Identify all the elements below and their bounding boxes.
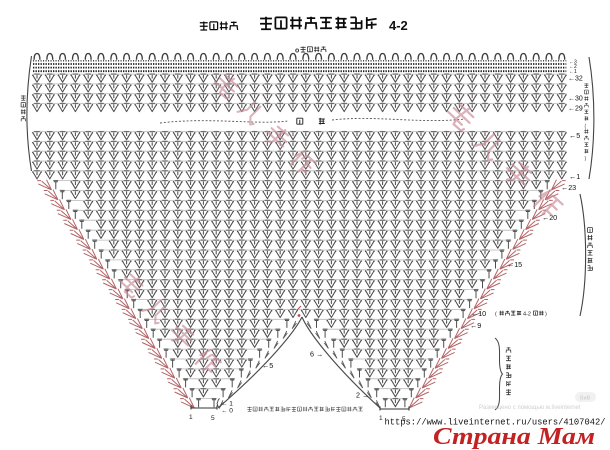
svg-text:2 →: 2 → [356, 391, 369, 400]
svg-text:← 1: ← 1 [221, 401, 233, 408]
svg-text:Страна Мам: Страна Мам [433, 424, 595, 450]
svg-text:←5: ←5 [569, 131, 580, 140]
svg-text:): ) [545, 312, 547, 318]
svg-text:←15: ←15 [507, 260, 522, 269]
svg-text:4-2: 4-2 [389, 18, 408, 33]
svg-text:← 0: ← 0 [221, 408, 233, 415]
svg-text:←1: ←1 [569, 172, 580, 181]
svg-text:6 →: 6 → [310, 350, 323, 359]
svg-text:←32: ←32 [568, 76, 583, 83]
svg-text:1: 1 [379, 415, 383, 422]
svg-text:Размещено с помощью м.liveinte: Размещено с помощью м.liveinternet [479, 405, 581, 411]
svg-text:←9: ←9 [470, 321, 481, 330]
svg-text:4-2: 4-2 [523, 312, 531, 318]
svg-text:o: o [295, 48, 299, 55]
svg-text:←10: ←10 [471, 309, 486, 318]
svg-text:(: ( [495, 312, 497, 318]
svg-text:←23: ←23 [561, 183, 576, 192]
svg-text:ВиВ: ВиВ [580, 396, 591, 402]
svg-text:1: 1 [189, 414, 193, 421]
svg-text:5: 5 [211, 415, 215, 422]
svg-text:←30: ←30 [568, 96, 583, 103]
svg-text:←1: ←1 [569, 69, 577, 75]
svg-text:←29: ←29 [568, 106, 583, 113]
svg-text:←5: ←5 [262, 361, 273, 370]
